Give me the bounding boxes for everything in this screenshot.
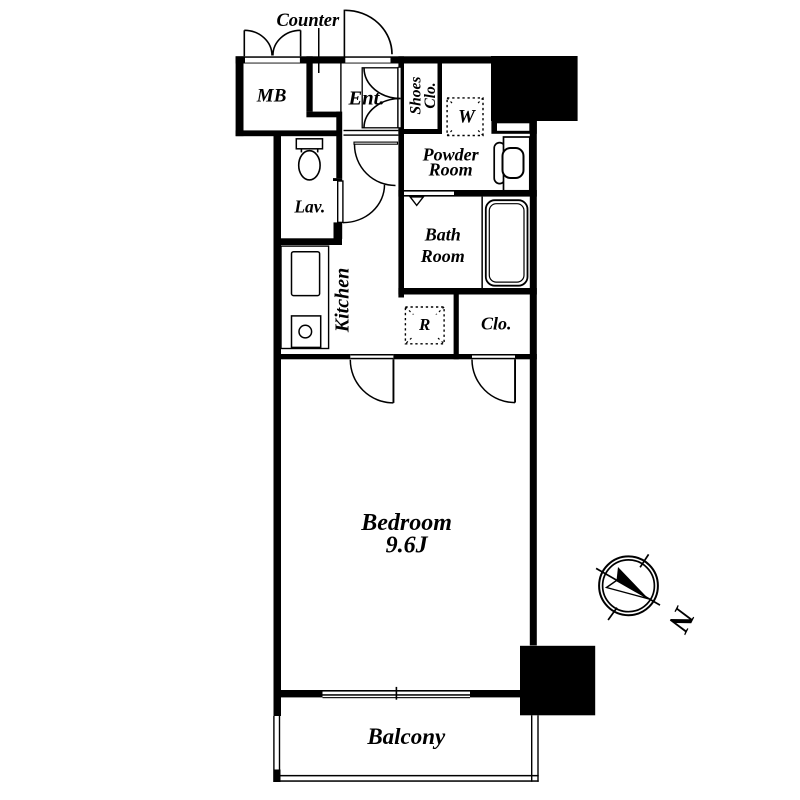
svg-text:Bath: Bath [424,224,461,244]
svg-text:Counter: Counter [276,11,340,31]
svg-text:Ent.: Ent. [348,88,385,110]
svg-text:Lav.: Lav. [293,197,325,217]
svg-text:R: R [418,315,430,334]
svg-text:Balcony: Balcony [366,724,446,749]
svg-text:9.6J: 9.6J [386,533,429,559]
svg-text:MB: MB [256,86,287,107]
svg-text:Room: Room [428,160,473,180]
svg-text:W: W [458,107,476,128]
svg-text:Clo.: Clo. [422,82,439,108]
svg-text:Room: Room [420,246,465,266]
svg-text:Clo.: Clo. [481,314,512,334]
svg-text:Kitchen: Kitchen [331,268,353,333]
